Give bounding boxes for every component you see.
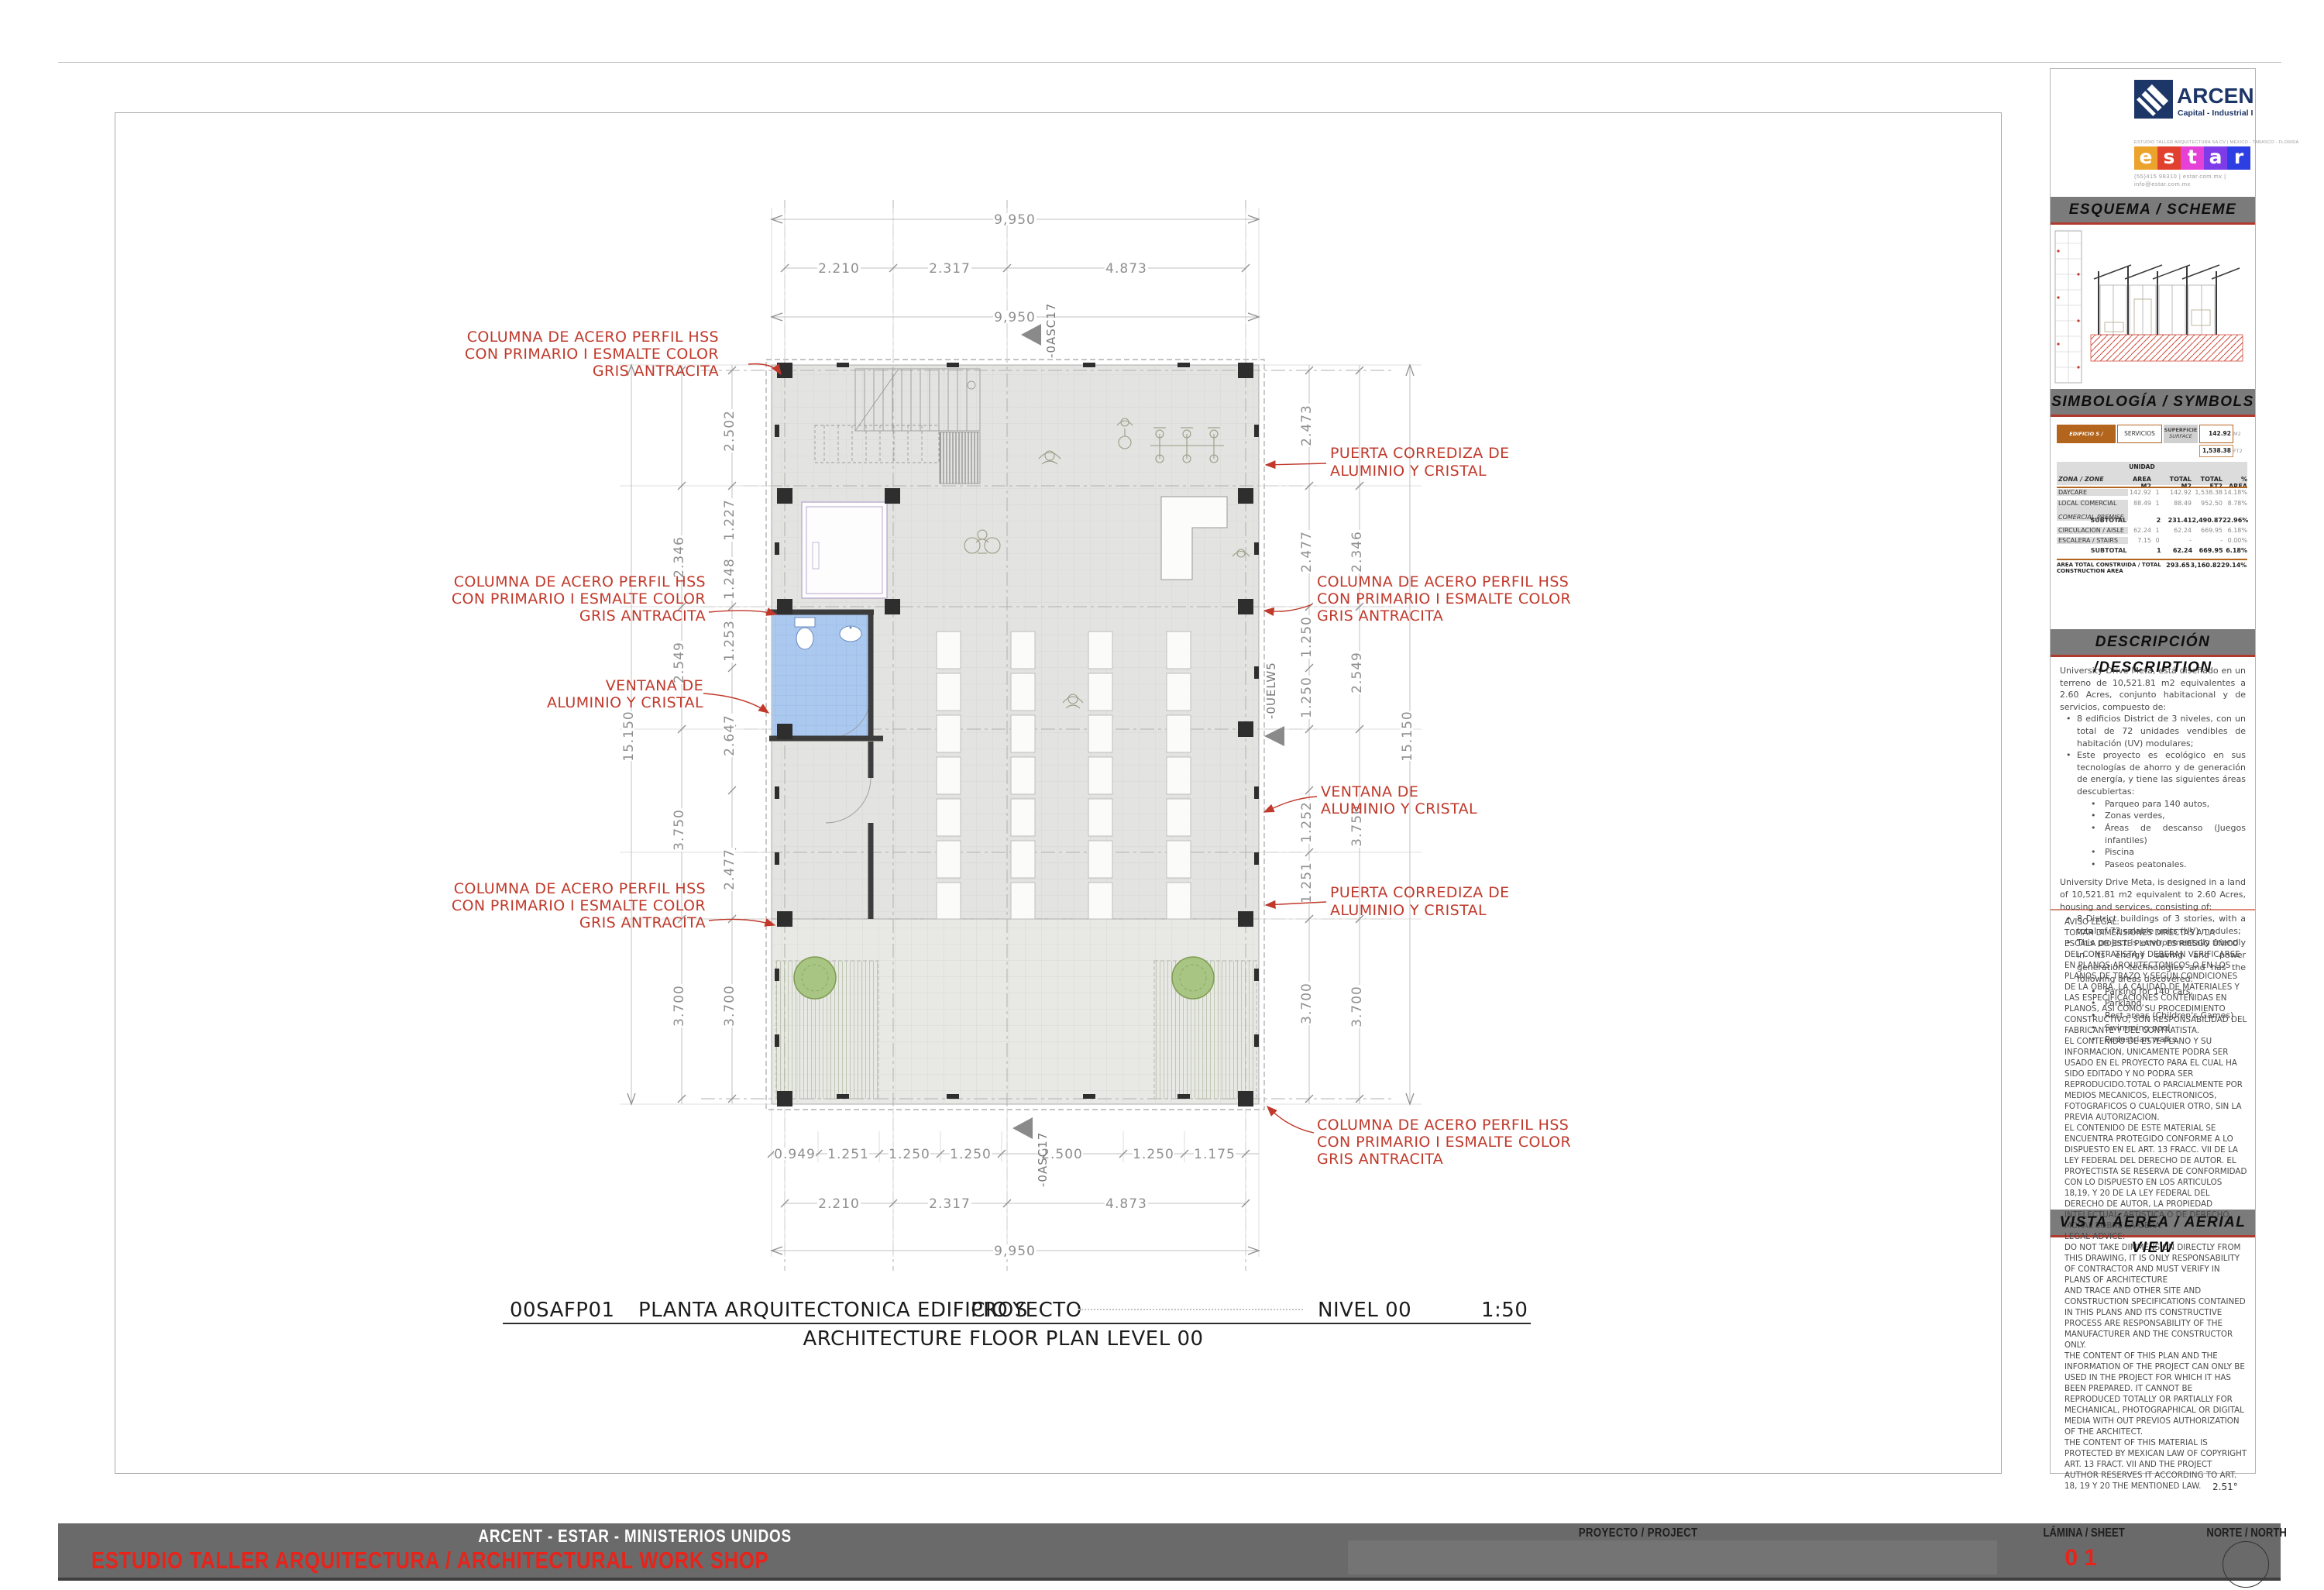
row-zone: DAYCARE <box>2057 489 2128 496</box>
annotation-column-top-left: COLUMNA DE ACERO PERFIL HSS CON PRIMARIO… <box>465 329 719 380</box>
svg-text:3.700: 3.700 <box>722 985 737 1027</box>
svg-text:3.700: 3.700 <box>1299 983 1315 1024</box>
svg-text:3.700: 3.700 <box>1349 986 1365 1027</box>
svg-text:GRIS ANTRACITA: GRIS ANTRACITA <box>593 363 719 380</box>
row-area <box>2130 547 2154 554</box>
svg-text:2.477: 2.477 <box>1299 531 1315 573</box>
hatch-strip <box>940 432 980 484</box>
row-total-m2: 142.92 <box>2164 489 2192 496</box>
svg-text:-0ASC17: -0ASC17 <box>1036 1132 1050 1187</box>
section-marker-right: -0UELW5 <box>1264 662 1284 746</box>
svg-text:CON PRIMARIO I ESMALTE COLOR: CON PRIMARIO I ESMALTE COLOR <box>452 590 706 607</box>
svg-text:1.251: 1.251 <box>827 1147 869 1162</box>
surface-en: SURFACE <box>2164 433 2198 439</box>
plan-level: NIVEL 00 <box>1318 1299 1411 1322</box>
scheme-section <box>2091 265 2243 361</box>
annotation-window-right: VENTANA DE ALUMINIO Y CRISTAL <box>1321 783 1477 817</box>
estar-letter: a <box>2204 146 2227 170</box>
table-surface-m2-unit: M2 <box>2233 425 2247 443</box>
svg-text:1.253: 1.253 <box>722 620 737 662</box>
estar-letter: t <box>2181 146 2204 170</box>
row-zone: SUBTOTAL <box>2057 547 2130 554</box>
svg-text:4.873: 4.873 <box>1105 261 1147 277</box>
svg-text:2.647: 2.647 <box>722 714 737 756</box>
table-row-subtotal: SUBTOTAL 2 231.41 2,490.87 22.96% <box>2057 517 2247 524</box>
scheme-drawing <box>2051 225 2255 389</box>
sheet-code: 00SAFP01 <box>510 1299 615 1322</box>
svg-text:2.317: 2.317 <box>929 261 971 277</box>
desc-en-b2: This project is environmentally friendly… <box>2060 937 2246 985</box>
table-rule <box>2057 487 2247 488</box>
svg-text:2.473: 2.473 <box>1299 404 1315 446</box>
title-dotted-filler <box>1078 1309 1303 1310</box>
estar-email: info@estar.com.mx <box>2134 181 2226 188</box>
svg-text:0.949: 0.949 <box>774 1147 816 1162</box>
row-area: 62.24 <box>2128 527 2151 534</box>
row-total-ft2: - <box>2192 537 2223 544</box>
desc-en-s4: Pedestrian walks. <box>2060 1034 2246 1046</box>
svg-text:2.346: 2.346 <box>1349 531 1365 573</box>
svg-text:2.549: 2.549 <box>1349 652 1365 693</box>
table-row: ESCALERA / STAIRS 7.15 0 - - 0.00% <box>2057 537 2247 544</box>
north-symbol <box>2223 1541 2269 1588</box>
row-total-m2: 62.24 <box>2165 547 2192 554</box>
estar-tagline: ESTUDIO TALLER ARQUITECTURA SA CV | MEXI… <box>2134 140 2298 145</box>
row-unit: 1 <box>2151 527 2164 534</box>
sink <box>840 626 861 642</box>
annotation-door-top-right: PUERTA CORREDIZA DE ALUMINIO Y CRISTAL <box>1330 445 1510 480</box>
bathroom <box>772 614 871 738</box>
row-pct: 6.18% <box>2223 527 2247 534</box>
surface-es: SUPERFICIE <box>2164 425 2198 433</box>
area-table: EDIFICIO S / BUILDING S SERVICIOS SUPERF… <box>2051 417 2255 629</box>
svg-text:4.873: 4.873 <box>1105 1196 1147 1212</box>
svg-text:15.150: 15.150 <box>621 711 637 761</box>
row-total-ft2: 1,538.38 <box>2192 489 2223 496</box>
row-unit: 0 <box>2151 537 2164 544</box>
arcent-name: ARCENT <box>2177 84 2254 108</box>
table-row-subtotal: SUBTOTAL 1 62.24 669.95 6.18% <box>2057 547 2247 554</box>
desc-en-s0: Parking for 140 cars, <box>2060 986 2246 998</box>
row-unit: 2 <box>2153 517 2165 524</box>
svg-text:COLUMNA DE ACERO PERFIL HSS: COLUMNA DE ACERO PERFIL HSS <box>454 880 706 897</box>
row-zone: AREA TOTAL CONSTRUIDA / TOTAL CONSTRUCTI… <box>2057 562 2162 574</box>
row-total-ft2: 669.95 <box>2192 547 2223 554</box>
desc-en-b1: 8 District buildings of 3 stories, with … <box>2060 913 2246 937</box>
sheet-label: LÁMINA / SHEET <box>2014 1526 2154 1540</box>
row-pct: 6.18% <box>2223 547 2247 554</box>
desc-es-s1: Zonas verdes, <box>2060 810 2246 822</box>
plan-scale: 1:50 <box>1481 1299 1528 1322</box>
svg-text:9,950: 9,950 <box>994 310 1036 325</box>
svg-text:1.250: 1.250 <box>889 1147 930 1162</box>
svg-text:CON PRIMARIO I ESMALTE COLOR: CON PRIMARIO I ESMALTE COLOR <box>465 346 719 363</box>
elevator <box>802 502 887 598</box>
annotation-column-bottom-left: COLUMNA DE ACERO PERFIL HSS CON PRIMARIO… <box>452 880 706 931</box>
row-total-m2: - <box>2164 537 2192 544</box>
svg-text:PUERTA CORREDIZA DE: PUERTA CORREDIZA DE <box>1330 445 1510 462</box>
annotation-column-mid-left: COLUMNA DE ACERO PERFIL HSS CON PRIMARIO… <box>452 573 706 625</box>
estar-phone: (55)415 98310 | estar.com.mx | <box>2134 173 2226 181</box>
table-surface-ft2: 1,538.38 <box>2199 445 2233 457</box>
estar-logo: estar <box>2134 146 2250 170</box>
svg-text:CON PRIMARIO I ESMALTE COLOR: CON PRIMARIO I ESMALTE COLOR <box>452 897 706 914</box>
title-underline <box>503 1323 1531 1324</box>
desc-en-s2: Rest areas (Children's Games) <box>2060 1010 2246 1022</box>
svg-text:COLUMNA DE ACERO PERFIL HSS: COLUMNA DE ACERO PERFIL HSS <box>1317 1117 1569 1134</box>
section-header-description: DESCRIPCIÓN /DESCRIPTION <box>2051 629 2255 657</box>
tree <box>1172 957 1214 999</box>
row-pct: 0.00% <box>2223 537 2247 544</box>
plan-title-es: PLANTA ARQUITECTONICA EDIFICIO S <box>638 1299 1028 1322</box>
plan-title-proyecto: PROYECTO <box>971 1299 1082 1322</box>
desc-es-b2: Este proyecto es ecológico en sus tecnol… <box>2060 749 2246 797</box>
svg-text:VENTANA DE: VENTANA DE <box>606 677 703 694</box>
annotation-door-bottom-right: PUERTA CORREDIZA DE ALUMINIO Y CRISTAL <box>1330 884 1510 919</box>
estar-letter: s <box>2157 146 2181 170</box>
svg-text:1.227: 1.227 <box>722 499 737 541</box>
table-surface-ft2-unit: FT2 <box>2233 445 2247 457</box>
row-total-ft2: 669.95 <box>2192 527 2223 534</box>
svg-text:ALUMINIO Y CRISTAL: ALUMINIO Y CRISTAL <box>1330 463 1487 480</box>
footer-company-line: ARCENT - ESTAR - MINISTERIOS UNIDOS <box>186 1526 1085 1547</box>
svg-text:2.210: 2.210 <box>818 1196 860 1212</box>
desc-en-s1: Parkland, <box>2060 997 2246 1010</box>
svg-text:2.346: 2.346 <box>672 536 687 578</box>
svg-text:-0ASC17: -0ASC17 <box>1044 303 1058 358</box>
drawing-sheet: 9,950 2.210 2.317 4.873 9,950 0.949 1.25… <box>0 0 2324 1590</box>
svg-text:2.477: 2.477 <box>722 848 737 890</box>
svg-text:COLUMNA DE ACERO PERFIL HSS: COLUMNA DE ACERO PERFIL HSS <box>467 329 719 346</box>
table-row: CIRCULACION / AISLE 62.24 1 62.24 669.95… <box>2057 527 2247 534</box>
svg-text:1.251: 1.251 <box>1299 862 1315 903</box>
svg-text:9,950: 9,950 <box>994 1244 1036 1259</box>
svg-text:GRIS ANTRACITA: GRIS ANTRACITA <box>1317 607 1443 625</box>
plan-title-en: ARCHITECTURE FLOOR PLAN LEVEL 00 <box>771 1327 1236 1351</box>
annotation-column-bottom-right: COLUMNA DE ACERO PERFIL HSS CON PRIMARIO… <box>1317 1117 1571 1168</box>
svg-text:CON PRIMARIO I ESMALTE COLOR: CON PRIMARIO I ESMALTE COLOR <box>1317 1134 1571 1151</box>
svg-text:1.248: 1.248 <box>722 558 737 600</box>
row-area: 7.15 <box>2128 537 2151 544</box>
svg-text:COLUMNA DE ACERO PERFIL HSS: COLUMNA DE ACERO PERFIL HSS <box>454 573 706 590</box>
section-header-symbols: SIMBOLOGÍA / SYMBOLS <box>2051 389 2255 417</box>
table-building-cell: EDIFICIO S / BUILDING S <box>2057 425 2116 443</box>
svg-text:1.250: 1.250 <box>1299 676 1315 718</box>
svg-text:9,950: 9,950 <box>994 212 1036 228</box>
floor-plan: 9,950 2.210 2.317 4.873 9,950 0.949 1.25… <box>0 0 2324 1590</box>
section-header-scheme: ESQUEMA / SCHEME <box>2051 197 2255 225</box>
row-pct: 22.96% <box>2223 517 2247 524</box>
row-total-m2: 293.65 <box>2162 562 2190 574</box>
title-block-panel: ARCENT Capital - Industrial INC. ESTUDIO… <box>2050 68 2256 1474</box>
row-zone: ESCALERA / STAIRS <box>2057 537 2128 544</box>
svg-text:ALUMINIO Y CRISTAL: ALUMINIO Y CRISTAL <box>1330 902 1487 919</box>
svg-text:GRIS ANTRACITA: GRIS ANTRACITA <box>1317 1151 1443 1168</box>
desc-en-intro: University Drive Meta, is designed in a … <box>2060 876 2246 913</box>
svg-text:ALUMINIO Y CRISTAL: ALUMINIO Y CRISTAL <box>1321 800 1477 817</box>
svg-text:COLUMNA DE ACERO PERFIL HSS: COLUMNA DE ACERO PERFIL HSS <box>1317 573 1569 590</box>
svg-text:3.750: 3.750 <box>672 809 687 851</box>
estar-contact: (55)415 98310 | estar.com.mx | info@esta… <box>2134 173 2226 188</box>
annotation-window-left: VENTANA DE ALUMINIO Y CRISTAL <box>547 677 703 711</box>
col-unidad: UNIDAD <box>2126 463 2157 470</box>
row-pct: 14.18% <box>2223 489 2247 496</box>
table-surface-m2: 142.92 <box>2199 425 2233 443</box>
svg-text:1.252: 1.252 <box>1299 801 1315 843</box>
svg-text:ALUMINIO Y CRISTAL: ALUMINIO Y CRISTAL <box>547 694 703 711</box>
row-zone: CIRCULACION / AISLE <box>2057 527 2128 534</box>
table-use-cell: SERVICIOS <box>2117 425 2162 443</box>
row-area <box>2130 517 2152 524</box>
svg-text:2.210: 2.210 <box>818 261 860 277</box>
legal-p2: EL CONTENIDO DE ESTE PLANO Y SU INFORMAC… <box>2064 1036 2247 1123</box>
table-surface-label: SUPERFICIE SURFACE <box>2164 425 2198 443</box>
svg-text:1.250: 1.250 <box>1299 616 1315 658</box>
row-total-m2: 231.41 <box>2164 517 2192 524</box>
section-marker-bottom: -0ASC17 <box>1012 1117 1050 1187</box>
svg-text:GRIS ANTRACITA: GRIS ANTRACITA <box>579 607 706 625</box>
svg-text:1.250: 1.250 <box>950 1147 992 1162</box>
annotation-column-mid-right: COLUMNA DE ACERO PERFIL HSS CON PRIMARIO… <box>1317 573 1571 625</box>
svg-text:GRIS ANTRACITA: GRIS ANTRACITA <box>579 914 706 931</box>
scheme-ground-hatch <box>2091 335 2243 361</box>
scheme-mini-plan <box>2055 231 2082 383</box>
desc-es-intro: University Drive Meta, está diseñado en … <box>2060 665 2246 713</box>
footer-studio-line: ESTUDIO TALLER ARQUITECTURA / ARCHITECTU… <box>91 1547 917 1575</box>
table-row-total: AREA TOTAL CONSTRUIDA / TOTAL CONSTRUCTI… <box>2057 559 2247 574</box>
desc-es-s3: Piscina <box>2060 846 2246 859</box>
svg-text:CON PRIMARIO I ESMALTE COLOR: CON PRIMARIO I ESMALTE COLOR <box>1317 590 1571 607</box>
desc-es-b1: 8 edificios District de 3 niveles, con u… <box>2060 713 2246 749</box>
desc-es-s2: Áreas de descanso (Juegos infantiles) <box>2060 822 2246 846</box>
svg-text:2.502: 2.502 <box>722 410 737 452</box>
svg-text:-0UELW5: -0UELW5 <box>1264 662 1278 719</box>
row-total-m2: 62.24 <box>2164 527 2192 534</box>
description-text: University Drive Meta, está diseñado en … <box>2051 657 2255 909</box>
estar-letter: e <box>2134 146 2157 170</box>
legal-p7: THE CONTENT OF THIS PLAN AND THE INFORMA… <box>2064 1351 2247 1437</box>
desc-es-s0: Parqueo para 140 autos, <box>2060 798 2246 810</box>
sheet-number: 01 <box>2014 1545 2154 1571</box>
table-row: DAYCARE 142.92 1 142.92 1,538.38 14.18% <box>2057 489 2247 496</box>
row-total-ft2: 2,490.87 <box>2192 517 2223 524</box>
arcent-subtitle: Capital - Industrial INC. <box>2178 108 2254 118</box>
toilet <box>795 618 815 649</box>
row-area: 142.92 <box>2128 489 2151 496</box>
svg-text:VENTANA DE: VENTANA DE <box>1321 783 1418 800</box>
row-unit: 1 <box>2153 547 2165 554</box>
svg-text:PUERTA CORREDIZA DE: PUERTA CORREDIZA DE <box>1330 884 1510 901</box>
row-unit: 1 <box>2151 489 2164 496</box>
logo-area: ARCENT Capital - Industrial INC. ESTUDIO… <box>2051 69 2255 197</box>
project-name-box <box>1348 1540 1997 1575</box>
row-zone: SUBTOTAL <box>2057 517 2130 524</box>
desc-es-s4: Paseos peatonales. <box>2060 859 2246 871</box>
north-angle: 2.51° <box>2212 1482 2238 1492</box>
estar-letter: r <box>2227 146 2250 170</box>
svg-text:3.700: 3.700 <box>672 985 687 1027</box>
row-total-ft2: 3,160.82 <box>2190 562 2221 574</box>
svg-text:2.317: 2.317 <box>929 1196 971 1212</box>
north-label: NORTE / NORTH <box>2192 1526 2301 1540</box>
tree <box>794 957 836 999</box>
svg-text:15.150: 15.150 <box>1400 711 1415 761</box>
arcent-logo: ARCENT Capital - Industrial INC. <box>2051 75 2254 133</box>
svg-text:1.250: 1.250 <box>1133 1147 1174 1162</box>
section-header-aerial: VISTA ÁEREA / AERIAL VIEW <box>2051 1210 2255 1237</box>
desc-en-s3: Swimming pool. <box>2060 1022 2246 1034</box>
row-pct: 29.14% <box>2221 562 2246 574</box>
project-label: PROYECTO / PROJECT <box>1456 1526 1820 1540</box>
svg-text:1.175: 1.175 <box>1194 1147 1236 1162</box>
